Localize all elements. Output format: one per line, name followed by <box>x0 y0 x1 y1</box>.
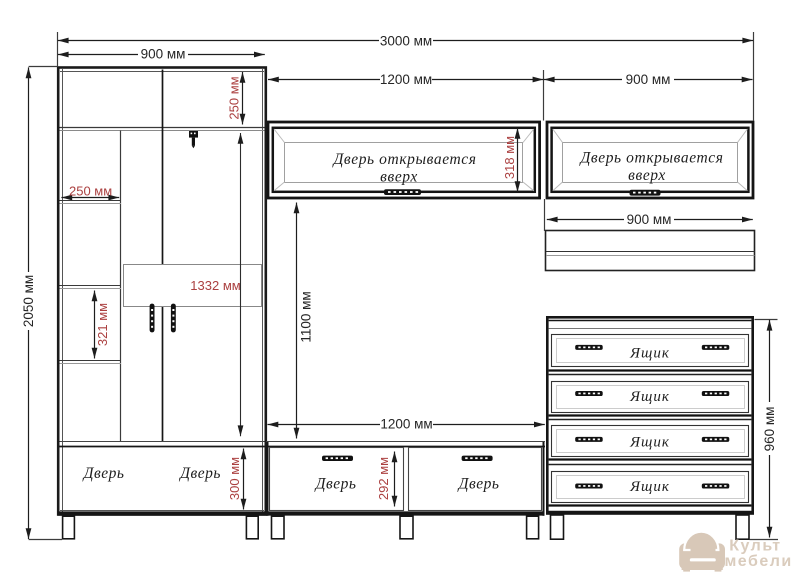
svg-text:1200 мм: 1200 мм <box>380 72 432 87</box>
svg-text:250 мм: 250 мм <box>69 184 112 199</box>
svg-text:321 мм: 321 мм <box>95 303 110 346</box>
svg-text:Дверь открывается: Дверь открывается <box>578 150 723 167</box>
svg-text:Дверь: Дверь <box>457 475 500 492</box>
svg-text:1200 мм: 1200 мм <box>380 417 432 432</box>
svg-text:Дверь: Дверь <box>82 465 125 482</box>
svg-text:300 мм: 300 мм <box>227 457 242 500</box>
svg-text:318 мм: 318 мм <box>502 136 517 179</box>
svg-text:900 мм: 900 мм <box>626 72 671 87</box>
svg-text:вверх: вверх <box>380 169 418 186</box>
svg-text:960 мм: 960 мм <box>762 407 777 452</box>
svg-text:Дверь: Дверь <box>314 475 357 492</box>
svg-text:Ящик: Ящик <box>629 434 670 450</box>
svg-text:вверх: вверх <box>628 167 666 184</box>
svg-text:2050 мм: 2050 мм <box>21 275 36 327</box>
svg-text:1100 мм: 1100 мм <box>299 291 314 342</box>
svg-text:Дверь открывается: Дверь открывается <box>331 151 476 168</box>
svg-text:900 мм: 900 мм <box>141 47 186 62</box>
svg-text:1332 мм: 1332 мм <box>190 278 240 293</box>
svg-text:900 мм: 900 мм <box>627 212 672 227</box>
svg-text:292 мм: 292 мм <box>376 457 391 500</box>
svg-text:Дверь: Дверь <box>178 465 221 482</box>
svg-text:мебели: мебели <box>724 553 792 570</box>
svg-text:250 мм: 250 мм <box>227 76 242 119</box>
svg-text:3000 мм: 3000 мм <box>380 34 432 49</box>
svg-text:Ящик: Ящик <box>629 346 670 362</box>
svg-text:Ящик: Ящик <box>629 479 670 495</box>
svg-text:Ящик: Ящик <box>629 389 670 405</box>
